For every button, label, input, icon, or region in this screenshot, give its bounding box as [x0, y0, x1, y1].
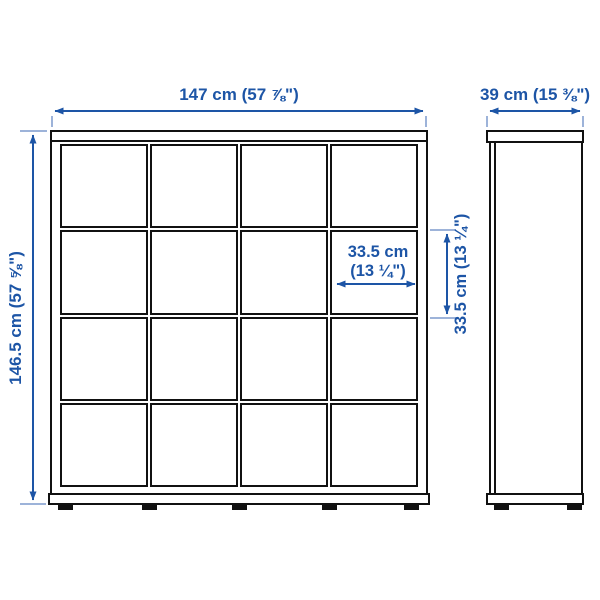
shelf-cell: [150, 317, 238, 401]
front-top-panel: [52, 140, 426, 142]
shelf-cell: [240, 317, 328, 401]
cell-width-label-line2: (13 ¼"): [333, 262, 423, 281]
front-foot: [232, 505, 247, 510]
overall-height-label: 146.5 cm (57 ⅝"): [6, 168, 26, 468]
shelf-cell: [150, 230, 238, 314]
depth-dimension: [487, 111, 583, 127]
width-dimension: [52, 111, 426, 127]
shelf-cell: [330, 317, 418, 401]
shelf-cell: [60, 230, 148, 314]
shelf-cell: [150, 144, 238, 228]
front-foot: [322, 505, 337, 510]
shelf-cell: [60, 317, 148, 401]
shelf-cell: [330, 144, 418, 228]
shelf-cell: [60, 144, 148, 228]
front-cell-grid: [60, 144, 418, 487]
shelf-cell: [60, 403, 148, 487]
cell-width-label: 33.5 cm (13 ¼"): [333, 243, 423, 281]
shelf-cell: [330, 403, 418, 487]
shelf-cell: [240, 144, 328, 228]
overall-depth-label: 39 cm (15 ⅜"): [467, 85, 600, 104]
overall-width-label: 147 cm (57 ⅞"): [50, 85, 428, 104]
side-view: [489, 141, 583, 495]
side-bottom-plinth: [486, 493, 584, 505]
shelf-cell: [240, 403, 328, 487]
front-view: [50, 130, 428, 495]
side-panel-edge: [494, 143, 496, 493]
side-foot: [494, 505, 509, 510]
diagram-canvas: 147 cm (57 ⅞") 39 cm (15 ⅜") 146.5 cm (5…: [0, 0, 600, 600]
front-foot: [404, 505, 419, 510]
side-foot: [567, 505, 582, 510]
shelf-cell: [240, 230, 328, 314]
cell-height-label: 33.5 cm (13 ¼"): [452, 194, 472, 354]
shelf-cell: [150, 403, 238, 487]
front-foot: [58, 505, 73, 510]
front-bottom-plinth: [48, 493, 430, 505]
cell-width-label-line1: 33.5 cm: [333, 243, 423, 262]
front-foot: [142, 505, 157, 510]
